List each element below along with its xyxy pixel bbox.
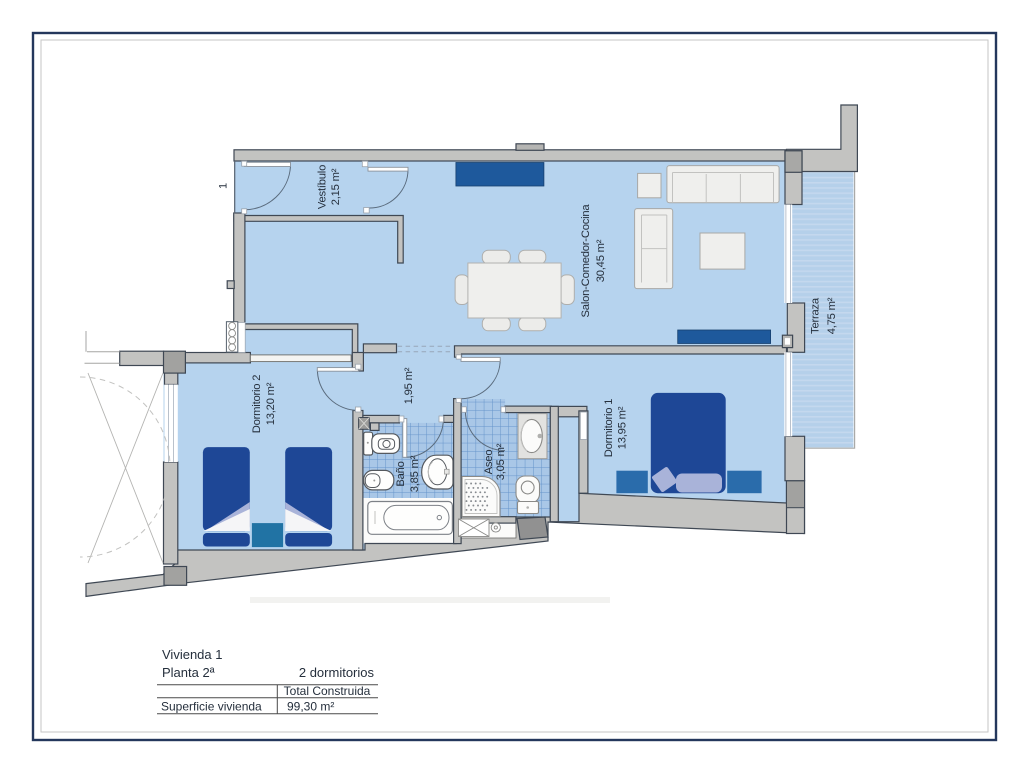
svg-text:1,95 m²: 1,95 m² (403, 367, 415, 404)
svg-text:99,30 m²: 99,30 m² (287, 700, 334, 714)
svg-text:Salon-Comedor-Cocina: Salon-Comedor-Cocina (580, 204, 592, 318)
svg-text:Planta 2ª: Planta 2ª (162, 665, 215, 680)
svg-text:Vivienda 1: Vivienda 1 (162, 647, 222, 662)
svg-text:Total Construida: Total Construida (284, 684, 371, 698)
svg-text:Vestíbulo: Vestíbulo (317, 165, 329, 209)
svg-text:Baño: Baño (395, 461, 407, 486)
svg-text:13,95 m²: 13,95 m² (617, 406, 629, 449)
svg-text:4,75 m²: 4,75 m² (826, 297, 838, 334)
svg-text:Aseo: Aseo (483, 450, 495, 475)
svg-text:Terraza: Terraza (810, 297, 822, 334)
svg-text:Dormitorio 2: Dormitorio 2 (251, 375, 263, 434)
svg-text:Superficie vivienda: Superficie vivienda (161, 700, 262, 714)
svg-text:3,85 m²: 3,85 m² (409, 455, 421, 492)
svg-text:13,20 m²: 13,20 m² (265, 382, 277, 425)
svg-text:3,05 m²: 3,05 m² (495, 443, 507, 480)
svg-text:1: 1 (218, 183, 230, 189)
svg-text:2 dormitorios: 2 dormitorios (299, 665, 375, 680)
svg-text:30,45 m²: 30,45 m² (595, 239, 607, 282)
svg-text:Dormitorio 1: Dormitorio 1 (603, 399, 615, 458)
svg-text:2,15 m²: 2,15 m² (330, 168, 342, 205)
